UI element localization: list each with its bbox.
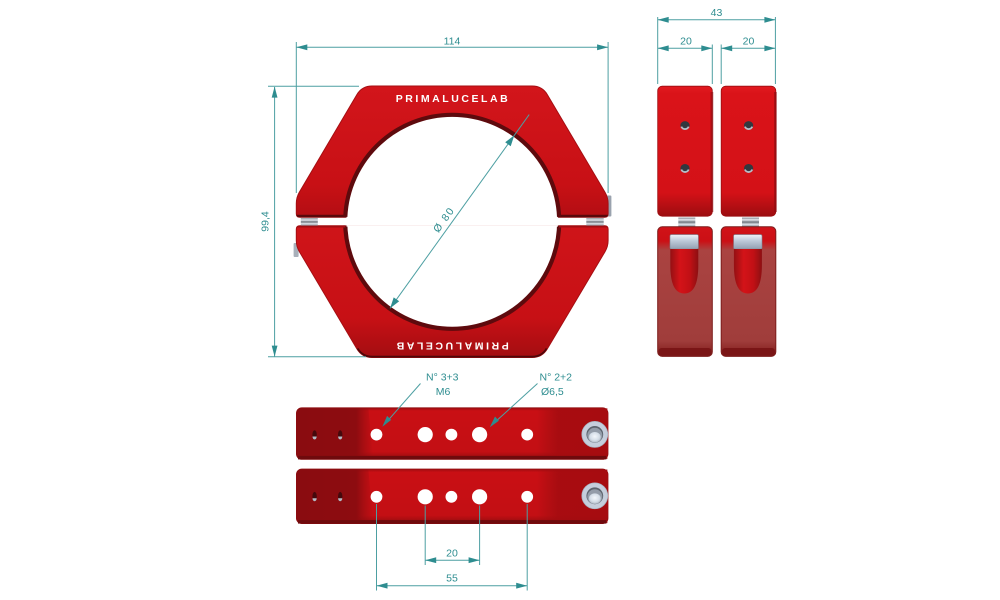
svg-text:99,4: 99,4 xyxy=(260,211,272,232)
svg-text:20: 20 xyxy=(743,36,755,48)
svg-text:M6: M6 xyxy=(436,386,451,398)
svg-text:43: 43 xyxy=(711,7,723,19)
svg-text:114: 114 xyxy=(444,35,461,47)
svg-text:20: 20 xyxy=(446,548,458,560)
svg-text:PRIMALUCELAB: PRIMALUCELAB xyxy=(396,93,511,105)
svg-text:Ø6,5: Ø6,5 xyxy=(541,386,564,398)
svg-text:55: 55 xyxy=(446,573,458,585)
svg-text:N° 2+2: N° 2+2 xyxy=(540,372,573,384)
svg-text:PRIMALUCELAB: PRIMALUCELAB xyxy=(394,339,509,351)
svg-text:N° 3+3: N° 3+3 xyxy=(426,372,459,384)
svg-text:20: 20 xyxy=(680,36,692,48)
